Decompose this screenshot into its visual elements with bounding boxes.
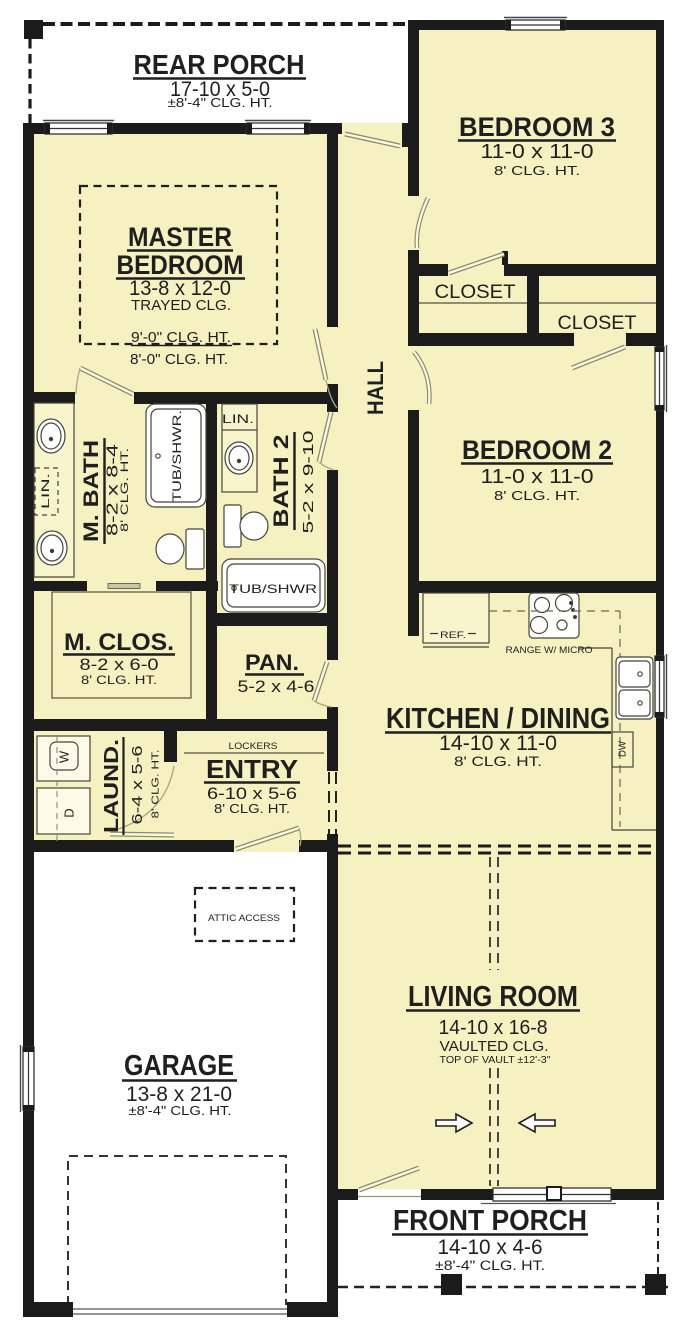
svg-text:5-2 x 4-6: 5-2 x 4-6 [238,677,315,696]
svg-text:LIVING ROOM: LIVING ROOM [408,981,578,1013]
svg-text:M. BATH: M. BATH [80,440,103,542]
svg-text:LIN.: LIN. [222,412,254,426]
svg-text:KITCHEN / DINING: KITCHEN / DINING [386,703,610,735]
svg-text:DW: DW [618,740,629,757]
svg-text:14-10 x 11-0: 14-10 x 11-0 [439,732,557,755]
svg-text:CLOSET: CLOSET [435,282,516,303]
svg-text:TOP OF VAULT ±12'-3": TOP OF VAULT ±12'-3" [440,1054,551,1066]
svg-text:FRONT PORCH: FRONT PORCH [393,1205,587,1237]
svg-text:D: D [62,808,77,817]
svg-text:11-0 x 11-0: 11-0 x 11-0 [481,466,594,488]
svg-text:LOCKERS: LOCKERS [229,741,278,751]
svg-text:14-10 x 16-8: 14-10 x 16-8 [439,1017,548,1039]
svg-text:8' CLG. HT.: 8' CLG. HT. [81,673,157,687]
svg-text:±8'-4" CLG. HT.: ±8'-4" CLG. HT. [168,95,273,110]
svg-text:8'-0" CLG. HT.: 8'-0" CLG. HT. [130,351,228,368]
svg-text:MASTER: MASTER [128,222,232,252]
svg-text:BEDROOM 2: BEDROOM 2 [462,435,612,465]
svg-text:BEDROOM 3: BEDROOM 3 [459,112,615,142]
svg-text:BEDROOM: BEDROOM [117,250,244,280]
svg-text:LAUND.: LAUND. [101,739,123,833]
svg-text:14-10 x 4-6: 14-10 x 4-6 [438,1236,543,1259]
svg-text:5-2 x 9-10: 5-2 x 9-10 [300,431,317,534]
svg-text:8' CLG. HT.: 8' CLG. HT. [494,163,580,178]
svg-text:CLOSET: CLOSET [558,313,637,334]
svg-text:6-4 x 5-6: 6-4 x 5-6 [129,746,146,825]
svg-text:8' CLG. HT.: 8' CLG. HT. [454,753,542,769]
svg-text:±8'-4" CLG. HT.: ±8'-4" CLG. HT. [129,1103,232,1118]
svg-text:8' CLG. HT.: 8' CLG. HT. [151,750,162,819]
svg-text:PAN.: PAN. [245,650,299,675]
svg-text:8' CLG. HT.: 8' CLG. HT. [214,801,290,816]
svg-text:REAR PORCH: REAR PORCH [134,49,305,80]
svg-text:VAULTED CLG.: VAULTED CLG. [440,1038,549,1055]
svg-text:M. CLOS.: M. CLOS. [64,629,174,656]
svg-text:RANGE W/ MICRO: RANGE W/ MICRO [506,645,593,656]
svg-text:ENTRY: ENTRY [206,754,298,784]
svg-text:HALL: HALL [363,361,388,415]
svg-text:LIN.: LIN. [40,473,52,509]
svg-text:8' CLG. HT.: 8' CLG. HT. [494,488,580,503]
svg-text:11-0 x 11-0: 11-0 x 11-0 [481,141,594,163]
svg-text:9'-0" CLG. HT.: 9'-0" CLG. HT. [131,329,231,346]
svg-text:GARAGE: GARAGE [124,1050,234,1082]
svg-text:TRAYED CLG.: TRAYED CLG. [131,297,231,314]
svg-text:W: W [57,750,72,763]
svg-text:8-2 x 6-0: 8-2 x 6-0 [80,655,159,674]
svg-text:ATTIC ACCESS: ATTIC ACCESS [208,913,280,924]
svg-text:BATH 2: BATH 2 [270,435,293,528]
svg-text:TUB/SHWR.: TUB/SHWR. [172,410,184,502]
svg-text:TUB/SHWR: TUB/SHWR [229,582,317,596]
svg-text:±8'-4" CLG. HT.: ±8'-4" CLG. HT. [435,1258,545,1273]
svg-text:8' CLG. HT.: 8' CLG. HT. [119,448,131,532]
svg-text:REF.: REF. [440,630,466,640]
